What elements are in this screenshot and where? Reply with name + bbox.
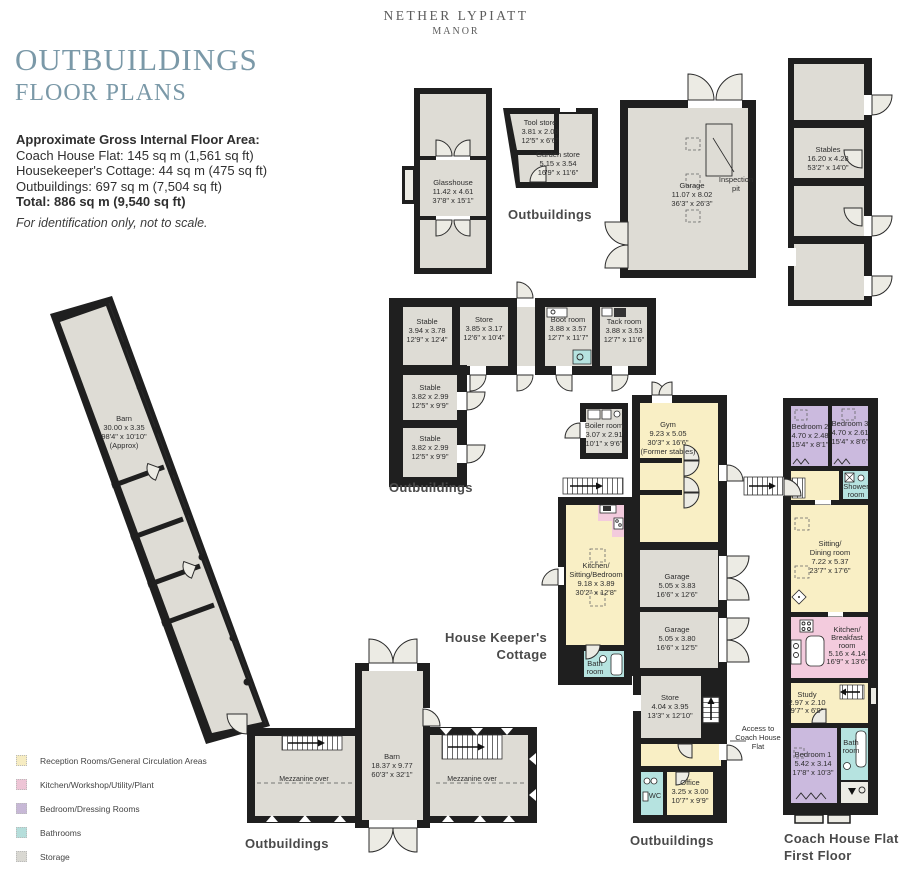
floorplan-page: NETHER LYPIATT MANOR OUTBUILDINGS FLOOR … bbox=[0, 0, 900, 877]
bathtub-fixture bbox=[611, 654, 622, 675]
svg-text:9.18 x 3.89: 9.18 x 3.89 bbox=[577, 579, 614, 588]
svg-text:Sitting/: Sitting/ bbox=[819, 539, 843, 548]
svg-text:Stables: Stables bbox=[815, 145, 840, 154]
svg-text:12'5" x 9'9": 12'5" x 9'9" bbox=[412, 401, 449, 410]
svg-text:16'6" x 12'6": 16'6" x 12'6" bbox=[656, 590, 697, 599]
svg-text:Office: Office bbox=[680, 778, 699, 787]
floorplan-drawing: Glasshouse 11.42 x 4.61 37'8" x 15'1" To… bbox=[0, 0, 900, 877]
svg-text:12'5" x 6'6": 12'5" x 6'6" bbox=[522, 136, 559, 145]
svg-text:Coach House: Coach House bbox=[735, 733, 780, 742]
svg-text:5.05 x 3.83: 5.05 x 3.83 bbox=[658, 581, 695, 590]
svg-text:Barn: Barn bbox=[116, 414, 132, 423]
svg-text:30.00 x 3.35: 30.00 x 3.35 bbox=[103, 423, 144, 432]
svg-text:Inspection: Inspection bbox=[719, 175, 753, 184]
svg-text:Bedroom 1: Bedroom 1 bbox=[795, 750, 832, 759]
svg-text:23'7" x 17'6": 23'7" x 17'6" bbox=[809, 566, 850, 575]
svg-text:5.05 x 3.80: 5.05 x 3.80 bbox=[658, 634, 695, 643]
svg-text:Garage: Garage bbox=[664, 572, 689, 581]
svg-text:Garden store: Garden store bbox=[536, 150, 580, 159]
svg-text:15'4" x 8'1": 15'4" x 8'1" bbox=[792, 440, 829, 449]
svg-text:9'7" x 6'9": 9'7" x 6'9" bbox=[791, 706, 824, 715]
flat-bath-label: Bath room bbox=[842, 738, 859, 755]
room-name: Glasshouse bbox=[433, 178, 473, 187]
room-dim-ft: 37'8" x 15'1" bbox=[432, 196, 473, 205]
cottage-entrance-stairs bbox=[563, 478, 623, 494]
barn-centre bbox=[362, 671, 423, 820]
svg-text:53'2" x 14'0": 53'2" x 14'0" bbox=[807, 163, 848, 172]
stable-row-buildings: Stable 3.94 x 3.78 12'9" x 12'4" Store 3… bbox=[389, 282, 656, 495]
svg-text:Tack room: Tack room bbox=[607, 317, 642, 326]
svg-text:room: room bbox=[847, 490, 864, 499]
svg-text:3.88 x 3.53: 3.88 x 3.53 bbox=[605, 326, 642, 335]
bedroom-2-label: Bedroom 2 4.70 x 2.48 15'4" x 8'1" bbox=[791, 422, 828, 449]
barn-floor bbox=[60, 306, 262, 733]
svg-text:4.04 x 3.95: 4.04 x 3.95 bbox=[651, 702, 688, 711]
gym-building: Gym 9.23 x 5.05 30'3" x 16'6" (Former st… bbox=[632, 382, 749, 676]
svg-text:5.42 x 3.14: 5.42 x 3.14 bbox=[794, 759, 831, 768]
glasshouse-building: Glasshouse 11.42 x 4.61 37'8" x 15'1" bbox=[402, 88, 492, 274]
right-mezzanine-stairs bbox=[442, 735, 502, 759]
svg-text:3.81 x 2.00: 3.81 x 2.00 bbox=[521, 127, 558, 136]
glasshouse-label: Glasshouse 11.42 x 4.61 37'8" x 15'1" bbox=[432, 178, 473, 205]
section-label-outbuildings-stores: Outbuildings bbox=[508, 207, 592, 222]
coach-house-building: Bedroom 2 4.70 x 2.48 15'4" x 8'1" Bedro… bbox=[744, 398, 899, 863]
svg-text:10'1" x 9'6": 10'1" x 9'6" bbox=[586, 439, 623, 448]
bedroom-1-label: Bedroom 1 5.42 x 3.14 17'8" x 10'3" bbox=[792, 750, 833, 777]
svg-text:9.23 x 5.05: 9.23 x 5.05 bbox=[649, 429, 686, 438]
svg-text:16'6" x 12'5": 16'6" x 12'5" bbox=[656, 643, 697, 652]
section-label-coach-house-2: First Floor bbox=[784, 848, 852, 863]
svg-text:Kitchen/: Kitchen/ bbox=[582, 561, 610, 570]
svg-text:11.07 x 8.02: 11.07 x 8.02 bbox=[672, 190, 713, 199]
stove-fixture bbox=[800, 620, 813, 632]
svg-text:Boot room: Boot room bbox=[551, 315, 586, 324]
garden-store-label: Garden store 5.15 x 3.54 16'9" x 11'6" bbox=[536, 150, 580, 177]
section-label-outbuildings-office: Outbuildings bbox=[630, 833, 714, 848]
passage-floor bbox=[517, 307, 535, 366]
svg-text:Stable: Stable bbox=[416, 317, 437, 326]
svg-text:3.94 x 3.78: 3.94 x 3.78 bbox=[408, 326, 445, 335]
porch-step bbox=[795, 815, 823, 823]
svg-text:16.20 x 4.28: 16.20 x 4.28 bbox=[807, 154, 848, 163]
svg-text:7.22 x 5.37: 7.22 x 5.37 bbox=[811, 557, 848, 566]
svg-text:Sitting/Bedroom: Sitting/Bedroom bbox=[569, 570, 622, 579]
svg-text:12'6" x 10'4": 12'6" x 10'4" bbox=[463, 333, 504, 342]
mezzanine-right-label: Mezzanine over bbox=[447, 776, 497, 783]
svg-text:10'7" x 9'9": 10'7" x 9'9" bbox=[672, 796, 709, 805]
stables-building: Stables 16.20 x 4.28 53'2" x 14'0" bbox=[788, 58, 892, 306]
svg-text:60'3" x 32'1": 60'3" x 32'1" bbox=[371, 770, 412, 779]
left-mezzanine-stairs bbox=[282, 736, 342, 750]
svg-text:12'7" x 11'6": 12'7" x 11'6" bbox=[604, 335, 645, 344]
boiler-room-building: Boiler room 3.07 x 2.91 10'1" x 9'6" bbox=[565, 403, 628, 459]
external-stairs bbox=[744, 477, 784, 495]
svg-text:12'5" x 9'9": 12'5" x 9'9" bbox=[412, 452, 449, 461]
wc-label: WC bbox=[649, 791, 662, 800]
store-stairs bbox=[703, 697, 719, 723]
svg-text:Stable: Stable bbox=[419, 383, 440, 392]
access-note: Access to Coach House Flat bbox=[730, 724, 781, 751]
svg-text:3.88 x 3.57: 3.88 x 3.57 bbox=[549, 324, 586, 333]
svg-text:30'2" x 12'8": 30'2" x 12'8" bbox=[575, 588, 616, 597]
cottage-building: Kitchen/ Sitting/Bedroom 9.18 x 3.89 30'… bbox=[445, 478, 632, 685]
mezzanine-left-label: Mezzanine over bbox=[279, 776, 329, 783]
bottom-barn-building: Barn 18.37 x 9.77 60'3" x 32'1" Mezzanin… bbox=[245, 639, 537, 852]
boiler-room-label: Boiler room 3.07 x 2.91 10'1" x 9'6" bbox=[585, 421, 623, 448]
svg-text:Garage: Garage bbox=[679, 181, 704, 190]
bedroom-3-label: Bedroom 3 4.70 x 2.61 15'4" x 8'6" bbox=[831, 419, 868, 446]
shower-cubicle bbox=[573, 350, 591, 364]
svg-text:16'9" x 11'6": 16'9" x 11'6" bbox=[538, 168, 579, 177]
long-barn-building: Barn 30.00 x 3.35 98'4" x 10'10" (Approx… bbox=[50, 296, 270, 744]
svg-text:13'3" x 12'10": 13'3" x 12'10" bbox=[647, 711, 693, 720]
cottage-bath-label: Bath room bbox=[586, 659, 603, 676]
svg-text:12'7" x 11'7": 12'7" x 11'7" bbox=[548, 333, 589, 342]
glasshouse-room-bottom bbox=[420, 220, 486, 268]
svg-text:4.70 x 2.48: 4.70 x 2.48 bbox=[791, 431, 828, 440]
tack-room-label: Tack room 3.88 x 3.53 12'7" x 11'6" bbox=[604, 317, 645, 344]
section-label-outbuildings-barn: Outbuildings bbox=[245, 836, 329, 851]
svg-text:Stable: Stable bbox=[419, 434, 440, 443]
office-block-building: Store 4.04 x 3.95 13'3" x 12'10" Office … bbox=[630, 668, 781, 848]
section-label-housekeepers-1: House Keeper's bbox=[445, 630, 547, 645]
svg-text:Store: Store bbox=[661, 693, 679, 702]
garden-store-building: Tool store 3.81 x 2.00 12'5" x 6'6" Gard… bbox=[503, 108, 598, 222]
svg-text:room: room bbox=[842, 746, 859, 755]
svg-text:98'4" x 10'10": 98'4" x 10'10" bbox=[101, 432, 147, 441]
svg-text:Dining room: Dining room bbox=[810, 548, 850, 557]
svg-text:3.82 x 2.99: 3.82 x 2.99 bbox=[411, 443, 448, 452]
svg-text:17'8" x 10'3": 17'8" x 10'3" bbox=[792, 768, 833, 777]
svg-text:Boiler room: Boiler room bbox=[585, 421, 623, 430]
glasshouse-room-top bbox=[420, 94, 486, 156]
svg-text:(Approx): (Approx) bbox=[110, 441, 139, 450]
section-label-coach-house-1: Coach House Flat bbox=[784, 831, 899, 846]
svg-text:16'9" x 13'6": 16'9" x 13'6" bbox=[826, 657, 867, 666]
svg-text:Store: Store bbox=[475, 315, 493, 324]
svg-text:Flat: Flat bbox=[752, 742, 765, 751]
tool-store-label: Tool store 3.81 x 2.00 12'5" x 6'6" bbox=[521, 118, 558, 145]
svg-text:Gym: Gym bbox=[660, 420, 676, 429]
svg-text:Garage: Garage bbox=[664, 625, 689, 634]
svg-text:Bedroom 3: Bedroom 3 bbox=[832, 419, 869, 428]
svg-text:36'3" x 26'3": 36'3" x 26'3" bbox=[671, 199, 712, 208]
gym-room bbox=[640, 403, 718, 542]
svg-text:Bedroom 2: Bedroom 2 bbox=[792, 422, 829, 431]
boot-room-label: Boot room 3.88 x 3.57 12'7" x 11'7" bbox=[548, 315, 589, 342]
svg-text:4.70 x 2.61: 4.70 x 2.61 bbox=[831, 428, 868, 437]
svg-text:Barn: Barn bbox=[384, 752, 400, 761]
svg-text:Access to: Access to bbox=[742, 724, 775, 733]
svg-text:pit: pit bbox=[732, 184, 741, 193]
section-label-housekeepers-2: Cottage bbox=[497, 647, 548, 662]
svg-text:3.82 x 2.99: 3.82 x 2.99 bbox=[411, 392, 448, 401]
svg-text:30'3" x 16'6": 30'3" x 16'6" bbox=[647, 438, 688, 447]
island-counter bbox=[806, 636, 824, 666]
svg-text:3.07 x 2.91: 3.07 x 2.91 bbox=[585, 430, 622, 439]
svg-text:3.85 x 3.17: 3.85 x 3.17 bbox=[465, 324, 502, 333]
svg-text:15'4" x 8'6": 15'4" x 8'6" bbox=[832, 437, 869, 446]
svg-text:3.25 x 3.00: 3.25 x 3.00 bbox=[671, 787, 708, 796]
svg-text:room: room bbox=[586, 667, 603, 676]
svg-text:12'9" x 12'4": 12'9" x 12'4" bbox=[406, 335, 447, 344]
svg-text:(Former stables): (Former stables) bbox=[640, 447, 696, 456]
section-label-outbuildings-stables: Outbuildings bbox=[389, 480, 473, 495]
flat-stairs bbox=[840, 685, 864, 699]
svg-text:Tool store: Tool store bbox=[524, 118, 557, 127]
room-dim-m: 11.42 x 4.61 bbox=[433, 187, 474, 196]
svg-text:5.15 x 3.54: 5.15 x 3.54 bbox=[539, 159, 576, 168]
main-garage-building: Garage 11.07 x 8.02 36'3" x 26'3" Inspec… bbox=[605, 74, 756, 278]
svg-text:18.37 x 9.77: 18.37 x 9.77 bbox=[371, 761, 412, 770]
